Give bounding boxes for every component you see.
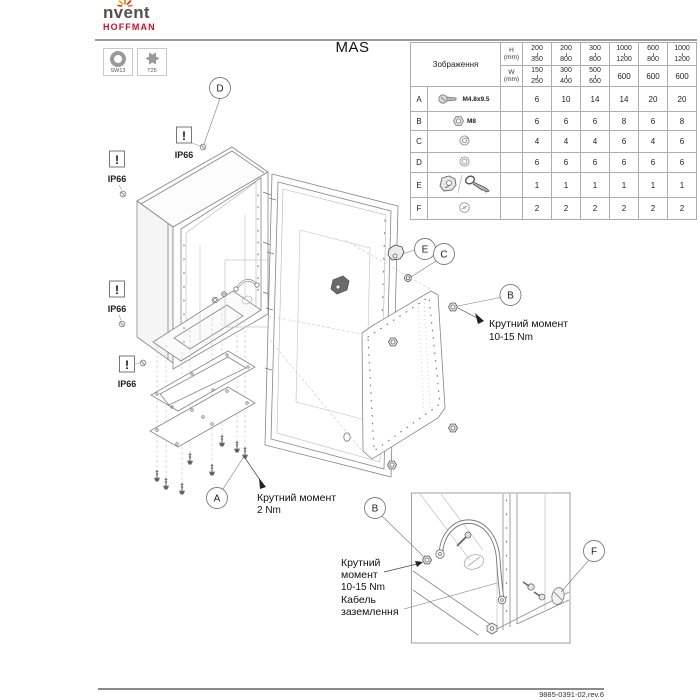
wall-screw bbox=[120, 191, 126, 197]
svg-text:F: F bbox=[591, 547, 597, 558]
ip66-warning-marker: ! IP66 bbox=[108, 151, 127, 197]
torque-value: 10-15 Nm bbox=[489, 332, 533, 343]
instruction-sheet: { "brand": {"name": "nvent", "sub": "HOF… bbox=[0, 0, 700, 700]
inset-torque-annotation: Крутний момент 10-15 Nm bbox=[341, 557, 423, 593]
leader-arrow bbox=[259, 478, 266, 489]
leader-arrow bbox=[475, 313, 484, 324]
ip66-warning-marker: ! IP66 bbox=[118, 356, 146, 389]
torque-text: Крутний момент bbox=[257, 492, 336, 504]
torque-text: момент bbox=[341, 569, 378, 581]
callout-e: E bbox=[402, 239, 436, 260]
inset-frame bbox=[412, 493, 571, 643]
svg-text:A: A bbox=[214, 494, 221, 505]
svg-text:D: D bbox=[216, 84, 223, 95]
warning-exclamation: ! bbox=[115, 283, 119, 297]
svg-text:B: B bbox=[372, 504, 379, 515]
callout-b: B bbox=[458, 285, 521, 307]
torque-text: Крутний bbox=[341, 557, 381, 569]
nut-b-inset-target bbox=[423, 556, 432, 564]
wall-screw bbox=[140, 360, 146, 366]
ip66-label: IP66 bbox=[108, 174, 127, 184]
svg-text:B: B bbox=[507, 291, 514, 302]
gland-screws bbox=[154, 435, 247, 494]
warning-exclamation: ! bbox=[182, 129, 186, 143]
detail-inset: B F Крутний момент 10-15 Nm Кабель зазем… bbox=[341, 493, 605, 643]
ip66-label: IP66 bbox=[108, 304, 127, 314]
nut-b-target bbox=[449, 303, 458, 311]
ip66-label: IP66 bbox=[175, 150, 194, 160]
torque-value: 2 Nm bbox=[257, 505, 281, 516]
svg-text:C: C bbox=[440, 250, 447, 261]
torque-annotation-b: Крутний момент 10-15 Nm bbox=[458, 308, 568, 343]
warning-exclamation: ! bbox=[115, 153, 119, 167]
torque-text: Крутний момент bbox=[489, 318, 568, 330]
ip66-warning-marker: ! IP66 bbox=[175, 127, 206, 160]
ip66-label: IP66 bbox=[118, 379, 137, 389]
ground-text: Кабель bbox=[341, 594, 376, 606]
lid-screw bbox=[200, 144, 206, 150]
exploded-view-drawing: ! IP66 ! IP66 ! IP66 ! IP66 bbox=[0, 0, 700, 700]
torque-value: 10-15 Nm bbox=[341, 582, 385, 593]
ip66-warning-marker: ! IP66 bbox=[108, 281, 127, 327]
wall-screw bbox=[119, 321, 125, 327]
svg-text:E: E bbox=[422, 245, 429, 256]
ground-text: заземлення bbox=[341, 606, 399, 618]
callout-d: D bbox=[204, 78, 231, 145]
warning-exclamation: ! bbox=[125, 358, 129, 372]
document-number: 9885-0391-02,rev.6 bbox=[404, 690, 604, 699]
torque-annotation-a: Крутний момент 2 Nm bbox=[245, 458, 336, 516]
